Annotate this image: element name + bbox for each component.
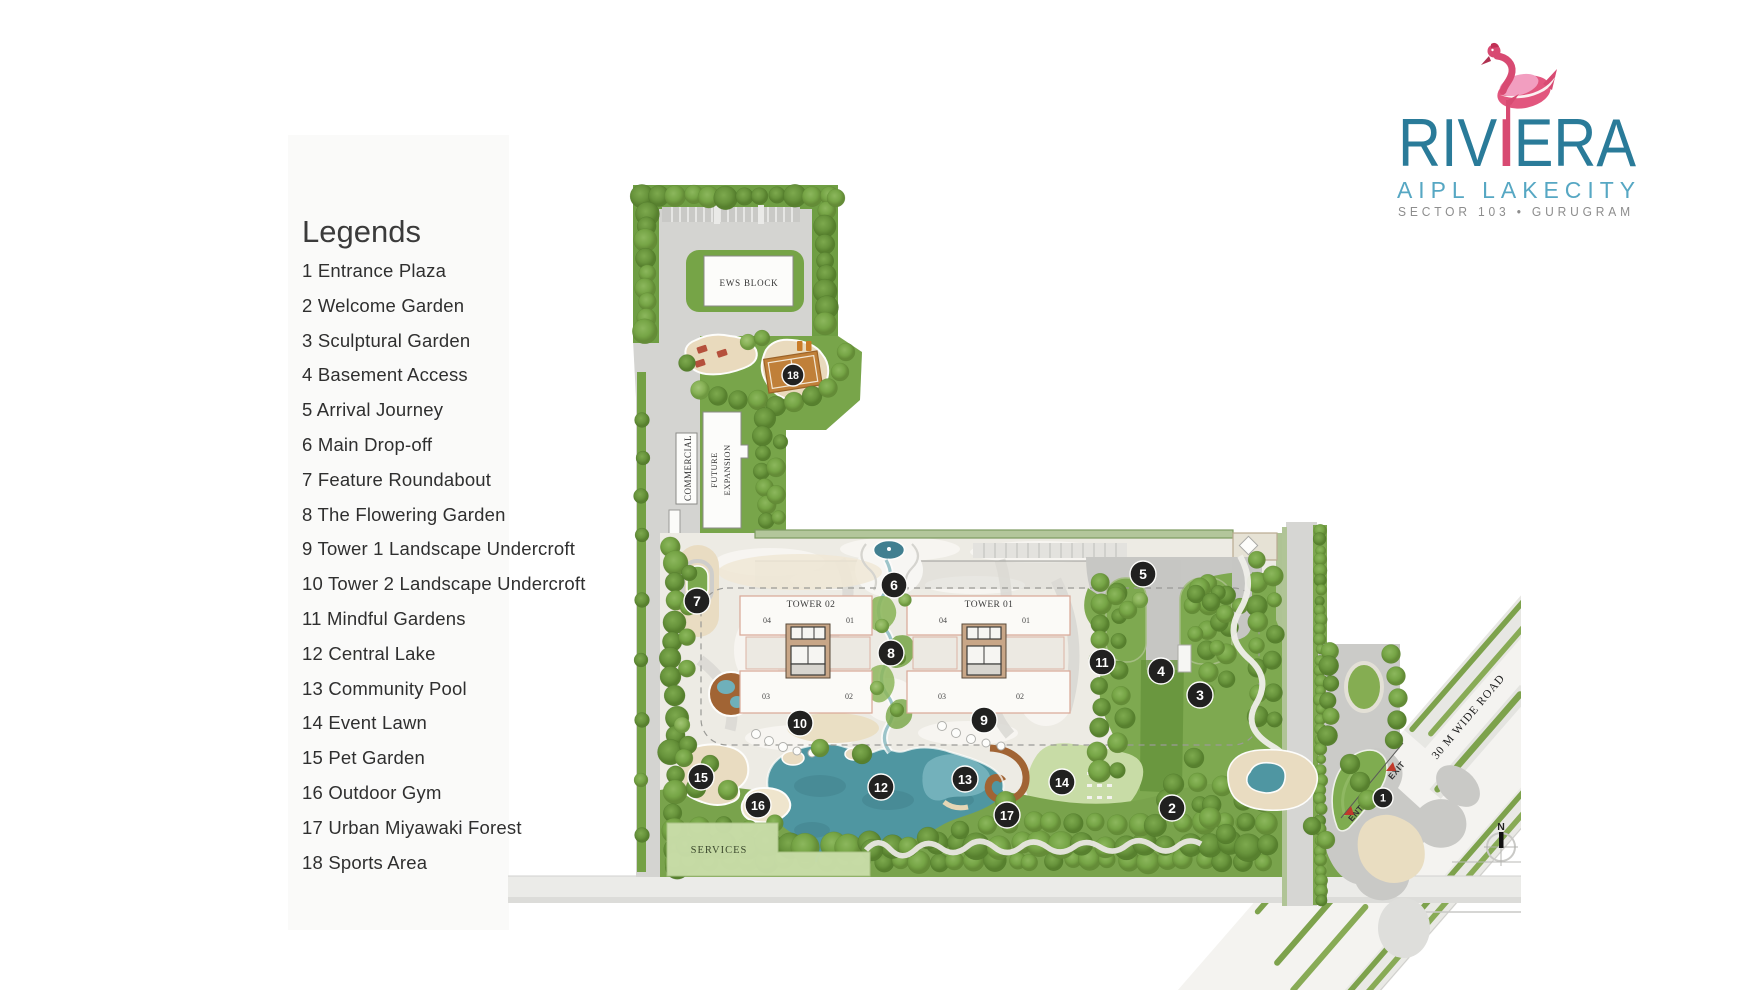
svg-text:16 Outdoor Gym: 16 Outdoor Gym — [302, 782, 442, 803]
svg-text:01: 01 — [846, 616, 854, 625]
svg-text:03: 03 — [762, 692, 770, 701]
svg-text:2 Welcome Garden: 2 Welcome Garden — [302, 295, 464, 316]
svg-text:9 Tower 1 Landscape Undercroft: 9 Tower 1 Landscape Undercroft — [302, 538, 575, 559]
svg-text:04: 04 — [939, 616, 947, 625]
svg-text:18 Sports Area: 18 Sports Area — [302, 852, 428, 873]
svg-text:02: 02 — [845, 692, 853, 701]
svg-text:15: 15 — [694, 771, 708, 785]
svg-text:12: 12 — [874, 781, 888, 795]
svg-text:17: 17 — [1000, 809, 1014, 823]
svg-text:8 The Flowering Garden: 8 The Flowering Garden — [302, 504, 506, 525]
svg-text:3: 3 — [1196, 687, 1204, 703]
svg-text:03: 03 — [938, 692, 946, 701]
svg-text:7: 7 — [693, 593, 701, 609]
svg-text:14: 14 — [1055, 776, 1069, 790]
svg-text:RIVIERA: RIVIERA — [1398, 105, 1637, 181]
svg-text:Legends: Legends — [302, 214, 421, 249]
svg-text:4 Basement Access: 4 Basement Access — [302, 364, 468, 385]
svg-text:2: 2 — [1168, 800, 1176, 816]
svg-text:AIPL LAKECITY: AIPL LAKECITY — [1397, 177, 1641, 203]
svg-text:COMMERCIAL: COMMERCIAL — [683, 435, 693, 501]
svg-text:6 Main Drop-off: 6 Main Drop-off — [302, 434, 433, 455]
svg-text:04: 04 — [763, 616, 771, 625]
svg-text:15 Pet Garden: 15 Pet Garden — [302, 747, 425, 768]
svg-text:5 Arrival Journey: 5 Arrival Journey — [302, 399, 444, 420]
svg-text:3 Sculptural Garden: 3 Sculptural Garden — [302, 330, 470, 351]
svg-text:EWS BLOCK: EWS BLOCK — [720, 278, 779, 288]
svg-text:7 Feature Roundabout: 7 Feature Roundabout — [302, 469, 491, 490]
svg-text:9: 9 — [980, 712, 988, 728]
svg-text:16: 16 — [751, 799, 765, 813]
svg-text:SERVICES: SERVICES — [691, 845, 748, 856]
svg-text:TOWER 01: TOWER 01 — [965, 600, 1014, 610]
svg-text:13: 13 — [958, 773, 972, 787]
svg-text:8: 8 — [887, 645, 895, 661]
svg-text:N: N — [1497, 821, 1505, 833]
svg-text:6: 6 — [890, 577, 898, 593]
svg-text:TOWER 02: TOWER 02 — [787, 600, 836, 610]
svg-text:4: 4 — [1157, 663, 1165, 679]
svg-text:01: 01 — [1022, 616, 1030, 625]
svg-text:02: 02 — [1016, 692, 1024, 701]
svg-text:11: 11 — [1095, 656, 1108, 670]
svg-text:FUTURE: FUTURE — [709, 452, 719, 487]
svg-text:17 Urban Miyawaki Forest: 17 Urban Miyawaki Forest — [302, 817, 522, 838]
svg-text:1: 1 — [1380, 793, 1386, 805]
svg-text:13 Community Pool: 13 Community Pool — [302, 678, 467, 699]
svg-text:1 Entrance Plaza: 1 Entrance Plaza — [302, 260, 447, 281]
svg-text:11 Mindful Gardens: 11 Mindful Gardens — [302, 608, 466, 629]
svg-text:14 Event Lawn: 14 Event Lawn — [302, 712, 427, 733]
svg-text:5: 5 — [1139, 566, 1147, 582]
svg-text:SECTOR 103 • GURUGRAM: SECTOR 103 • GURUGRAM — [1398, 205, 1634, 219]
svg-text:10 Tower 2 Landscape Undercrof: 10 Tower 2 Landscape Undercroft — [302, 573, 586, 594]
svg-text:10: 10 — [793, 717, 807, 731]
svg-text:12 Central Lake: 12 Central Lake — [302, 643, 436, 664]
svg-text:EXPANSION: EXPANSION — [722, 445, 732, 496]
svg-text:18: 18 — [787, 370, 799, 382]
